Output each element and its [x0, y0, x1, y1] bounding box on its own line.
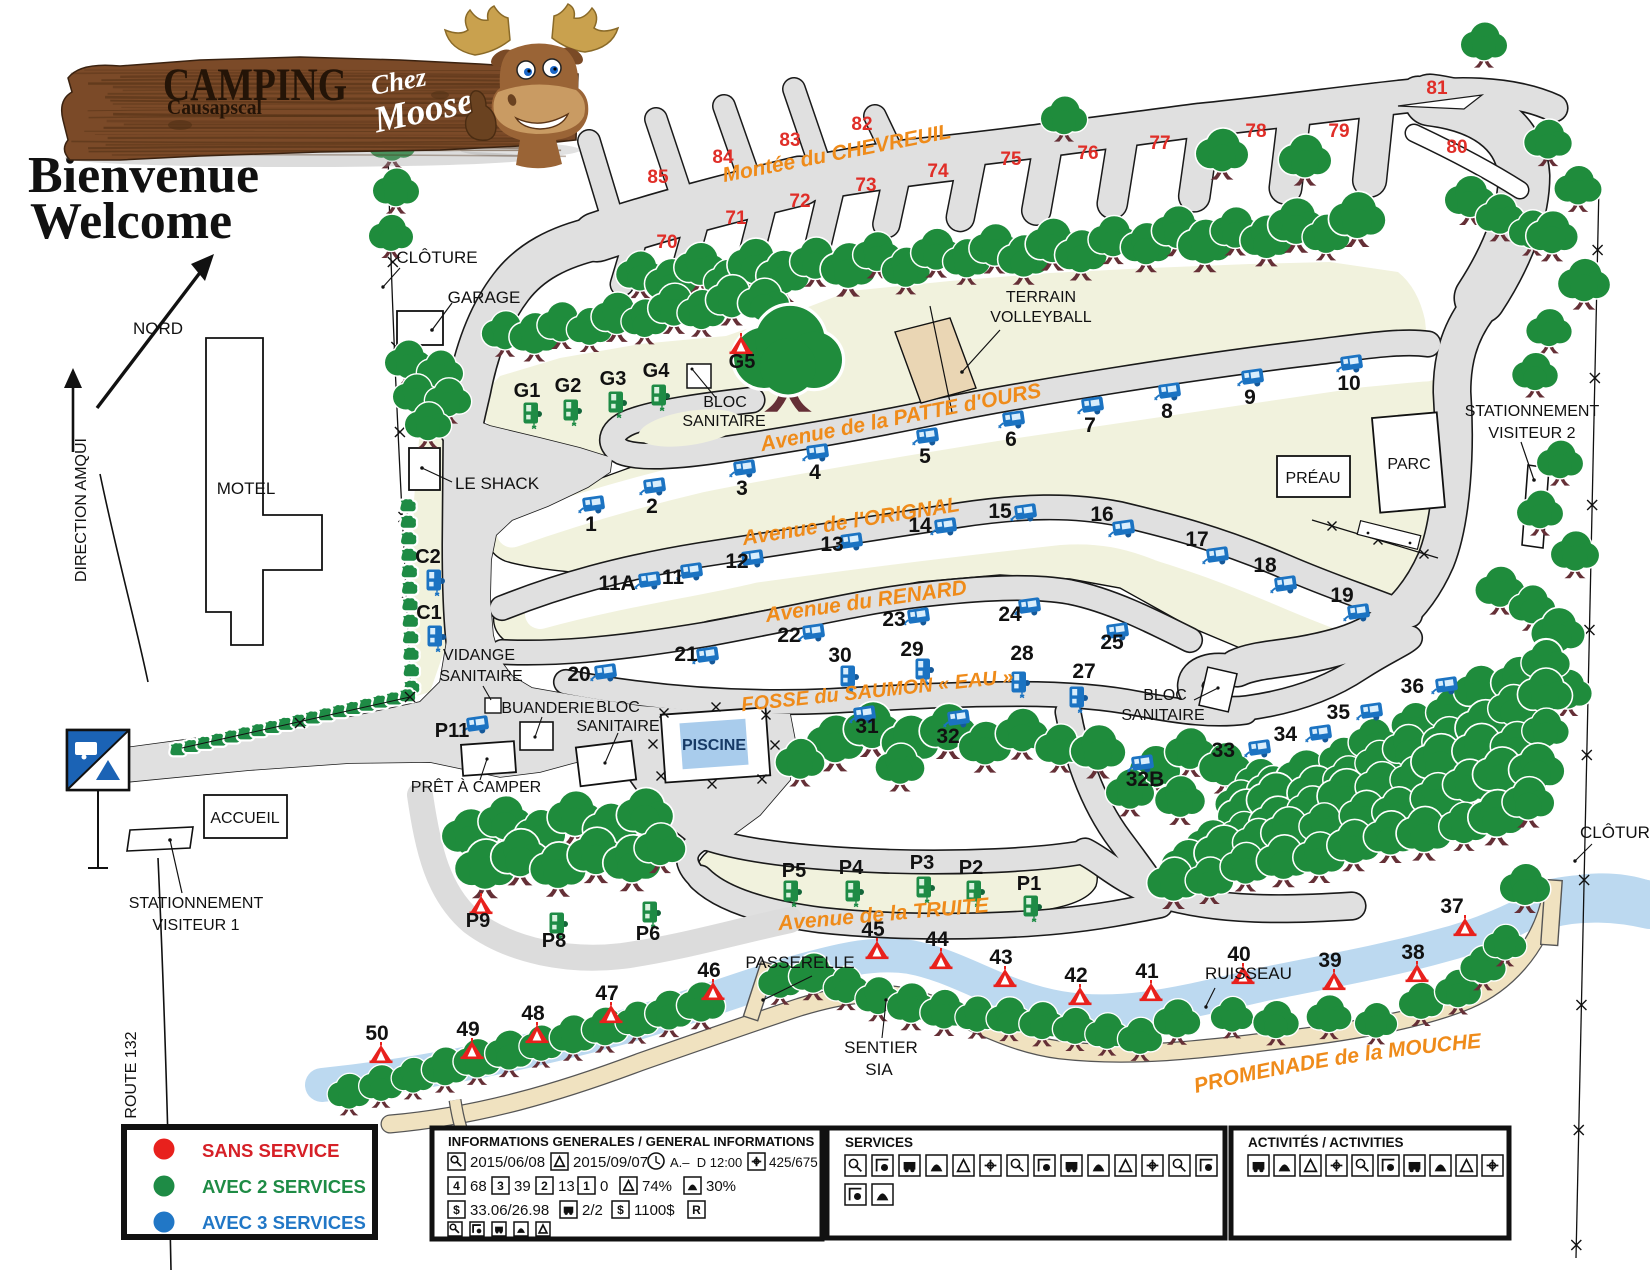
- svg-text:P9: P9: [466, 910, 490, 932]
- svg-text:G3: G3: [600, 368, 627, 390]
- svg-text:PRÊT À CAMPER: PRÊT À CAMPER: [411, 777, 541, 796]
- svg-text:76: 76: [1077, 143, 1098, 164]
- svg-text:39: 39: [1318, 949, 1341, 972]
- svg-text:NORD: NORD: [133, 319, 183, 338]
- svg-text:VIDANGE: VIDANGE: [443, 647, 515, 664]
- svg-text:34: 34: [1274, 723, 1298, 746]
- svg-text:21: 21: [674, 643, 698, 666]
- svg-text:23: 23: [882, 608, 905, 631]
- svg-text:33: 33: [1212, 739, 1235, 762]
- svg-text:Welcome: Welcome: [30, 193, 232, 250]
- svg-text:68: 68: [470, 1178, 487, 1195]
- svg-text:16: 16: [1090, 503, 1113, 526]
- svg-text:44: 44: [925, 928, 949, 951]
- svg-text:C2: C2: [415, 546, 441, 568]
- svg-text:83: 83: [779, 130, 800, 151]
- svg-text:G2: G2: [555, 375, 582, 397]
- svg-text:73: 73: [855, 175, 876, 196]
- svg-text:35: 35: [1327, 701, 1351, 724]
- svg-text:33.06/26.98: 33.06/26.98: [470, 1202, 549, 1219]
- svg-text:2: 2: [541, 1179, 548, 1193]
- svg-text:P11: P11: [435, 720, 469, 742]
- svg-text:CLÔTURE: CLÔTURE: [1580, 823, 1650, 842]
- svg-text:C1: C1: [416, 602, 442, 624]
- svg-text:2015/06/08: 2015/06/08: [470, 1154, 545, 1171]
- svg-text:37: 37: [1440, 895, 1463, 918]
- svg-text:24: 24: [998, 603, 1022, 626]
- svg-text:G4: G4: [643, 360, 671, 382]
- svg-text:ACTIVITÉS / ACTIVITIES: ACTIVITÉS / ACTIVITIES: [1248, 1135, 1404, 1150]
- svg-text:82: 82: [851, 114, 872, 135]
- svg-text:GARAGE: GARAGE: [448, 288, 521, 307]
- svg-text:85: 85: [647, 167, 669, 188]
- svg-text:4: 4: [809, 461, 821, 484]
- svg-text:STATIONNEMENT: STATIONNEMENT: [129, 895, 264, 912]
- svg-text:9: 9: [1244, 386, 1256, 409]
- svg-text:1: 1: [585, 513, 597, 536]
- svg-text:DIRECTION AMQUI: DIRECTION AMQUI: [73, 438, 90, 582]
- svg-text:BLOC: BLOC: [703, 394, 747, 411]
- svg-text:STATIONNEMENT: STATIONNEMENT: [1465, 403, 1600, 420]
- svg-text:72: 72: [789, 191, 810, 212]
- svg-text:SANITAIRE: SANITAIRE: [1121, 707, 1204, 724]
- svg-text:SIA: SIA: [865, 1060, 893, 1079]
- svg-text:22: 22: [777, 624, 800, 647]
- svg-text:RUISSEAU: RUISSEAU: [1205, 964, 1292, 983]
- svg-text:1100$: 1100$: [634, 1202, 675, 1219]
- svg-text:74: 74: [927, 161, 949, 182]
- svg-text:G5: G5: [729, 351, 756, 373]
- svg-text:13: 13: [558, 1178, 575, 1195]
- svg-text:SANS SERVICE: SANS SERVICE: [202, 1140, 339, 1161]
- svg-text:49: 49: [456, 1018, 479, 1041]
- svg-text:43: 43: [989, 946, 1012, 969]
- svg-text:47: 47: [595, 982, 618, 1005]
- svg-text:VOLLEYBALL: VOLLEYBALL: [990, 309, 1092, 326]
- svg-text:12: 12: [725, 550, 748, 573]
- svg-text:LE SHACK: LE SHACK: [455, 474, 540, 493]
- svg-text:17: 17: [1185, 528, 1208, 551]
- svg-text:46: 46: [697, 959, 720, 982]
- svg-text:BLOC: BLOC: [1143, 687, 1187, 704]
- svg-text:SANITAIRE: SANITAIRE: [439, 668, 522, 685]
- svg-text:30: 30: [828, 644, 851, 667]
- svg-text:PISCINE: PISCINE: [682, 737, 746, 754]
- svg-text:38: 38: [1401, 941, 1425, 964]
- svg-text:$: $: [617, 1203, 624, 1217]
- svg-text:32: 32: [936, 725, 959, 748]
- svg-text:50: 50: [365, 1022, 388, 1045]
- svg-text:25: 25: [1100, 631, 1124, 654]
- svg-text:81: 81: [1426, 78, 1448, 99]
- svg-text:PARC: PARC: [1387, 456, 1430, 473]
- svg-text:75: 75: [1000, 149, 1022, 170]
- svg-text:4: 4: [453, 1179, 460, 1193]
- svg-text:40: 40: [1227, 943, 1250, 966]
- svg-text:SANITAIRE: SANITAIRE: [682, 413, 765, 430]
- svg-text:19: 19: [1330, 584, 1353, 607]
- svg-text:36: 36: [1401, 675, 1424, 698]
- svg-text:Causapscal: Causapscal: [167, 95, 262, 119]
- svg-text:VISITEUR 1: VISITEUR 1: [152, 917, 239, 934]
- svg-text:5: 5: [919, 445, 931, 468]
- svg-text:SERVICES: SERVICES: [845, 1135, 913, 1150]
- svg-text:10: 10: [1337, 372, 1360, 395]
- svg-text:7: 7: [1084, 414, 1096, 437]
- svg-text:48: 48: [521, 1002, 545, 1025]
- svg-text:30%: 30%: [706, 1178, 736, 1195]
- svg-text:6: 6: [1005, 428, 1017, 451]
- svg-text:P2: P2: [959, 857, 983, 879]
- svg-text:CLÔTURE: CLÔTURE: [396, 248, 477, 267]
- svg-text:MOTEL: MOTEL: [217, 479, 276, 498]
- svg-text:R: R: [692, 1203, 701, 1217]
- svg-text:$: $: [453, 1203, 460, 1217]
- svg-text:41: 41: [1135, 960, 1159, 983]
- svg-text:31: 31: [855, 715, 879, 738]
- svg-text:AVEC 2 SERVICES: AVEC 2 SERVICES: [202, 1176, 366, 1197]
- svg-text:18: 18: [1253, 554, 1277, 577]
- svg-text:PASSERELLE: PASSERELLE: [745, 953, 854, 972]
- svg-text:G1: G1: [514, 380, 541, 402]
- svg-text:74%: 74%: [642, 1178, 672, 1195]
- svg-text:42: 42: [1064, 964, 1087, 987]
- svg-text:28: 28: [1010, 642, 1034, 665]
- svg-text:INFORMATIONS GENERALES / GENER: INFORMATIONS GENERALES / GENERAL INFORMA…: [448, 1134, 815, 1149]
- svg-text:8: 8: [1161, 400, 1173, 423]
- svg-text:3: 3: [497, 1179, 504, 1193]
- svg-text:0: 0: [600, 1178, 608, 1195]
- svg-text:P4: P4: [839, 857, 864, 879]
- svg-text:70: 70: [656, 232, 677, 253]
- svg-text:15: 15: [988, 500, 1012, 523]
- svg-text:TERRAIN: TERRAIN: [1006, 289, 1076, 306]
- svg-text:71: 71: [725, 208, 747, 229]
- svg-text:SENTIER: SENTIER: [844, 1038, 918, 1057]
- svg-text:80: 80: [1446, 137, 1467, 158]
- svg-text:AVEC 3 SERVICES: AVEC 3 SERVICES: [202, 1212, 366, 1233]
- svg-text:A.– D 12:00: A.– D 12:00: [670, 1155, 742, 1170]
- svg-text:20: 20: [567, 663, 590, 686]
- svg-text:2/2: 2/2: [582, 1202, 603, 1219]
- svg-text:11A: 11A: [598, 572, 635, 595]
- svg-text:425/675: 425/675: [769, 1155, 818, 1170]
- svg-text:39: 39: [514, 1178, 531, 1195]
- svg-text:3: 3: [736, 477, 748, 500]
- svg-text:29: 29: [900, 638, 923, 661]
- svg-text:P6: P6: [636, 923, 660, 945]
- svg-text:P8: P8: [542, 930, 566, 952]
- svg-text:32B: 32B: [1126, 768, 1165, 791]
- svg-text:78: 78: [1245, 121, 1266, 142]
- svg-text:P3: P3: [910, 852, 934, 874]
- svg-text:BUANDERIE: BUANDERIE: [501, 700, 594, 717]
- svg-text:2015/09/07: 2015/09/07: [573, 1154, 648, 1171]
- svg-text:ROUTE 132: ROUTE 132: [123, 1031, 140, 1118]
- svg-text:P5: P5: [782, 860, 806, 882]
- svg-text:1: 1: [583, 1179, 590, 1193]
- svg-text:BLOC: BLOC: [596, 699, 640, 716]
- svg-text:PRÉAU: PRÉAU: [1285, 468, 1340, 487]
- svg-text:77: 77: [1149, 133, 1170, 154]
- svg-text:SANITAIRE: SANITAIRE: [576, 718, 659, 735]
- svg-text:ACCUEIL: ACCUEIL: [210, 810, 279, 827]
- svg-text:27: 27: [1072, 660, 1095, 683]
- svg-text:P1: P1: [1017, 873, 1041, 895]
- svg-text:2: 2: [646, 495, 658, 518]
- svg-text:11: 11: [662, 566, 685, 589]
- svg-text:79: 79: [1328, 121, 1349, 142]
